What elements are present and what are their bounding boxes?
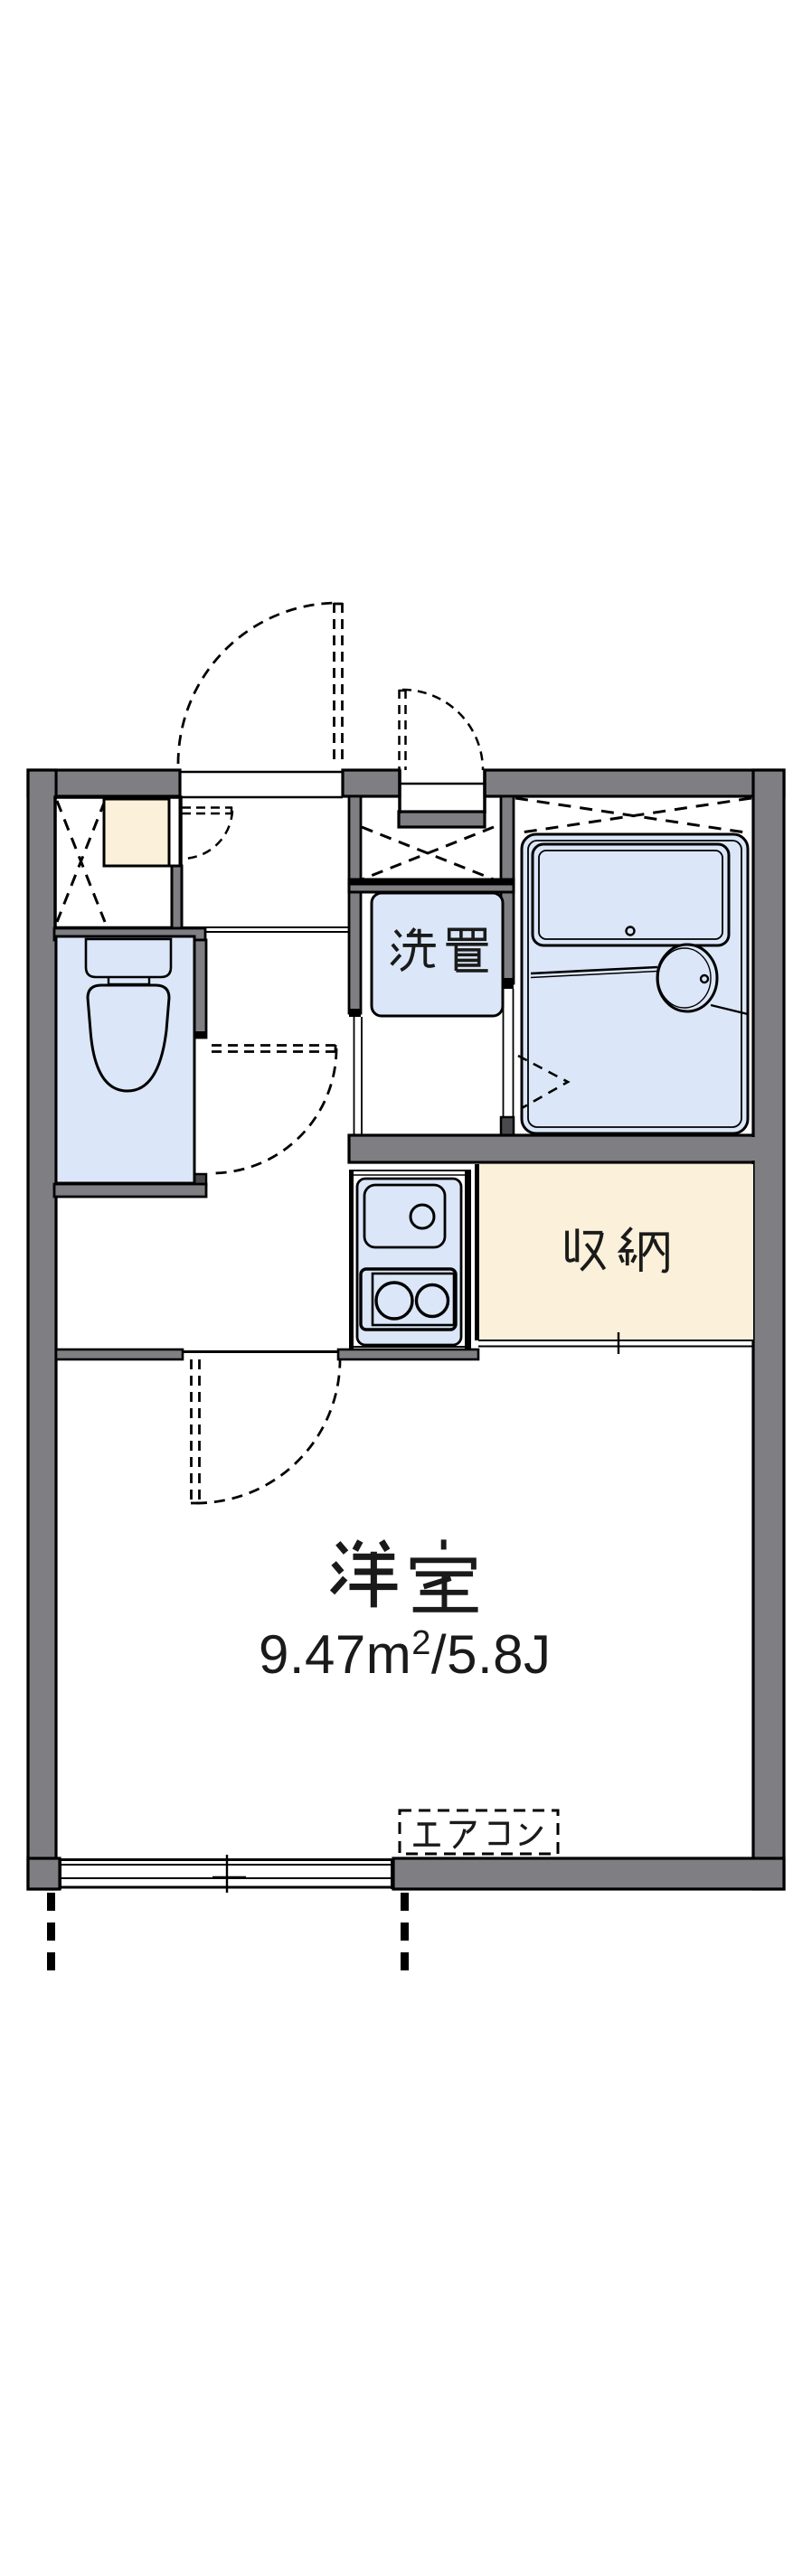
svg-text:9.47m2/5.8J: 9.47m2/5.8J	[259, 1624, 551, 1685]
